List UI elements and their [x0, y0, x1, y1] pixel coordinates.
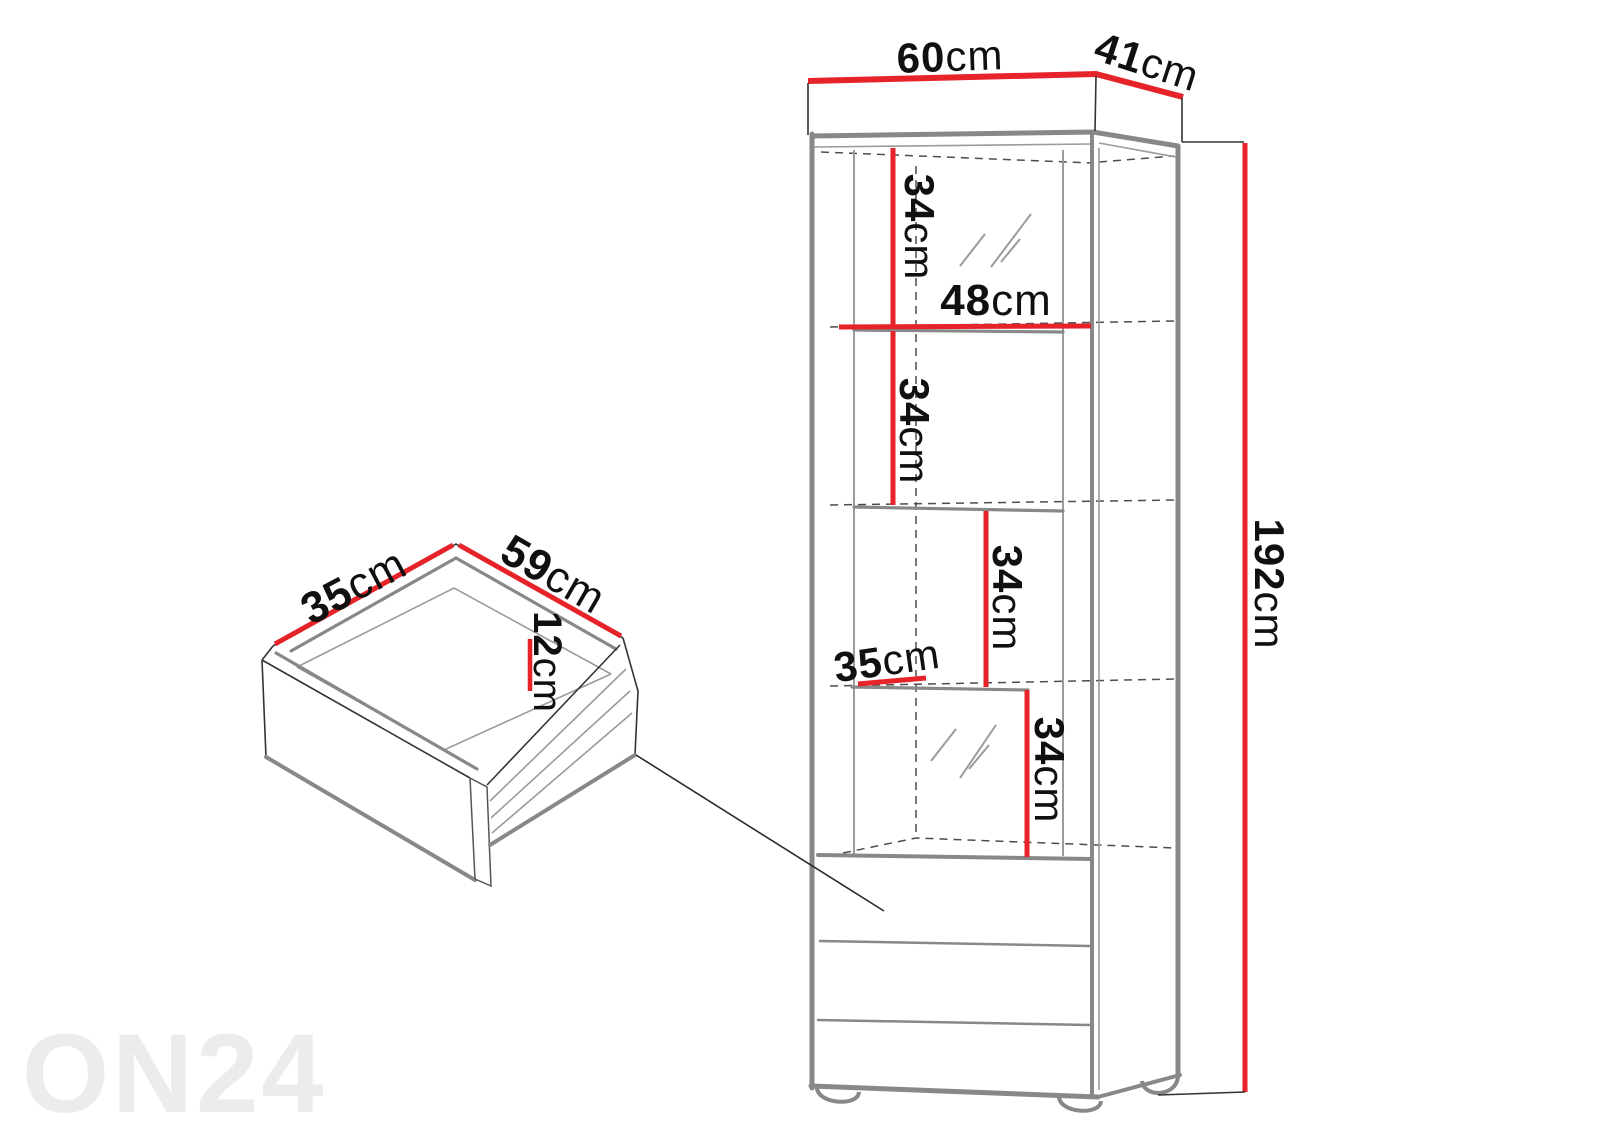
dimension-unit: cm: [1246, 592, 1293, 650]
dimension-unit: cm: [991, 276, 1052, 325]
dimension-unit: cm: [1026, 765, 1073, 823]
drawer-depth-label: 35cm: [294, 541, 413, 632]
dimension-unit: cm: [879, 630, 943, 685]
dimension-value: 48: [940, 276, 991, 325]
compartment-height-label-2: 34cm: [893, 378, 935, 485]
compartment-height-label-3: 34cm: [986, 545, 1028, 652]
compartment-height-label-1: 34cm: [898, 174, 940, 281]
dimension-value: 34: [891, 378, 938, 427]
dimension-value: 35: [831, 638, 886, 691]
dimension-unit: cm: [984, 593, 1031, 651]
cabinet-width-label: 60cm: [896, 34, 1004, 80]
dimension-unit: cm: [896, 222, 943, 280]
dimension-value: 192: [1246, 518, 1293, 591]
dimension-labels: 60cm 41cm 192cm 48cm 34cm 34cm 34cm 34cm…: [0, 0, 1600, 1145]
drawer-height-label: 12cm: [527, 611, 567, 713]
dimension-unit: cm: [1135, 38, 1205, 101]
dimension-unit: cm: [891, 426, 938, 484]
shelf-depth-label: 35cm: [831, 633, 943, 689]
cabinet-depth-label: 41cm: [1090, 26, 1204, 99]
dimension-value: 12: [525, 611, 569, 658]
dimension-value: 34: [1026, 717, 1073, 766]
compartment-height-label-4: 34cm: [1028, 717, 1070, 824]
dimension-diagram: ON24: [0, 0, 1600, 1145]
dimension-value: 34: [896, 174, 943, 223]
cabinet-height-label: 192cm: [1248, 518, 1290, 649]
drawer-width-label: 59cm: [494, 528, 613, 622]
dimension-unit: cm: [525, 658, 569, 713]
dimension-unit: cm: [945, 31, 1005, 80]
dimension-value: 60: [896, 33, 946, 82]
dimension-value: 34: [984, 545, 1031, 594]
shelf-width-label: 48cm: [940, 279, 1052, 323]
